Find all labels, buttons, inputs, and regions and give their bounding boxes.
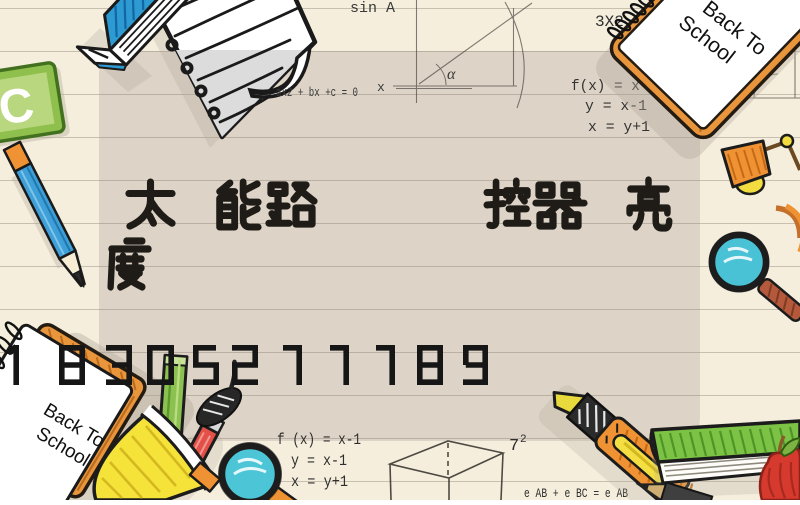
svg-text:α: α: [447, 66, 456, 83]
svg-text:x = y+1: x = y+1: [291, 473, 348, 491]
svg-text:e AB + e BC = e AB: e AB + e BC = e AB: [524, 487, 628, 500]
svg-text:y = x-1: y = x-1: [291, 452, 347, 470]
svg-text:x = y+1: x = y+1: [588, 119, 650, 136]
svg-text:sin A: sin A: [350, 0, 395, 17]
svg-text:2: 2: [520, 434, 527, 446]
svg-text:f (x) = x-1: f (x) = x-1: [277, 431, 361, 449]
svg-text:ax2 + bx +c = 0: ax2 + bx +c = 0: [276, 86, 358, 100]
svg-text:7: 7: [509, 437, 519, 456]
svg-text:x: x: [377, 80, 385, 95]
